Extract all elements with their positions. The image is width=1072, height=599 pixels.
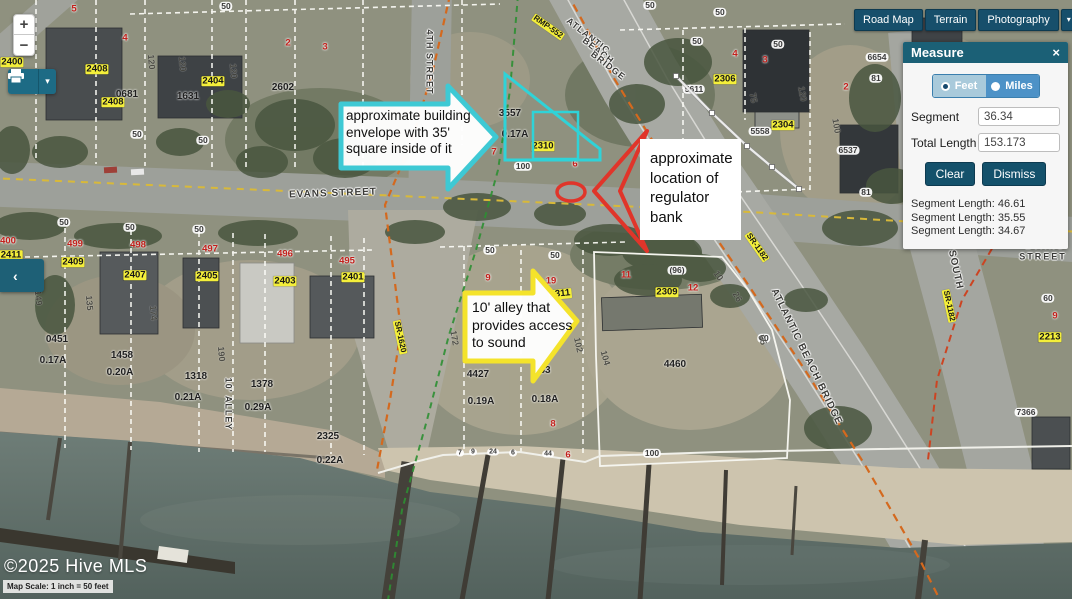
unit-label: Miles	[1005, 80, 1033, 92]
unit-label: Feet	[955, 80, 978, 92]
basemap-button-road-map[interactable]: Road Map	[854, 9, 923, 31]
basemap-button-terrain[interactable]: Terrain	[925, 9, 977, 31]
print-button[interactable]	[8, 69, 39, 94]
zoom-in-button[interactable]: +	[13, 14, 35, 35]
print-dropdown-button[interactable]: ▾	[39, 69, 56, 94]
radio-icon	[941, 82, 950, 91]
measure-title: Measure	[911, 45, 964, 60]
segment-length-list: Segment Length: 46.61Segment Length: 35.…	[911, 198, 1060, 239]
measure-panel: Measure × FeetMiles Segment Total Length…	[903, 42, 1068, 249]
total-length-label: Total Length	[911, 136, 976, 150]
segment-length-entry: Segment Length: 46.61	[911, 198, 1060, 212]
segment-input[interactable]	[978, 107, 1060, 126]
unit-option-feet[interactable]: Feet	[933, 75, 986, 97]
radio-icon	[991, 82, 1000, 91]
sidebar-collapse-tab[interactable]: ‹	[0, 259, 44, 292]
print-controls: ▾	[8, 69, 56, 94]
unit-toggle: FeetMiles	[932, 74, 1040, 98]
unit-option-miles[interactable]: Miles	[986, 75, 1039, 97]
zoom-out-button[interactable]: −	[13, 35, 35, 56]
printer-icon	[8, 69, 24, 83]
clear-button[interactable]: Clear	[925, 162, 976, 186]
segment-length-entry: Segment Length: 34.67	[911, 225, 1060, 239]
zoom-controls: + −	[13, 14, 35, 56]
measure-panel-header[interactable]: Measure ×	[903, 42, 1068, 63]
map-scale-label: Map Scale: 1 inch = 50 feet	[3, 580, 113, 593]
copyright-watermark: ©2025 Hive MLS	[4, 556, 147, 577]
basemap-dropdown-button[interactable]: ▾	[1061, 9, 1072, 31]
total-length-input[interactable]	[978, 133, 1060, 152]
basemap-toolbar: Road MapTerrainPhotography▾	[854, 9, 1072, 31]
segment-length-entry: Segment Length: 35.55	[911, 212, 1060, 226]
segment-label: Segment	[911, 110, 959, 124]
map-viewport[interactable]: EVANS STREETEVANSSTREETATLANTICBEACHBRID…	[0, 0, 1072, 599]
regulator-annotation-box	[640, 139, 741, 240]
dismiss-button[interactable]: Dismiss	[982, 162, 1046, 186]
chevron-left-icon: ‹	[13, 268, 18, 284]
basemap-button-photography[interactable]: Photography	[978, 9, 1058, 31]
close-icon[interactable]: ×	[1052, 46, 1060, 59]
